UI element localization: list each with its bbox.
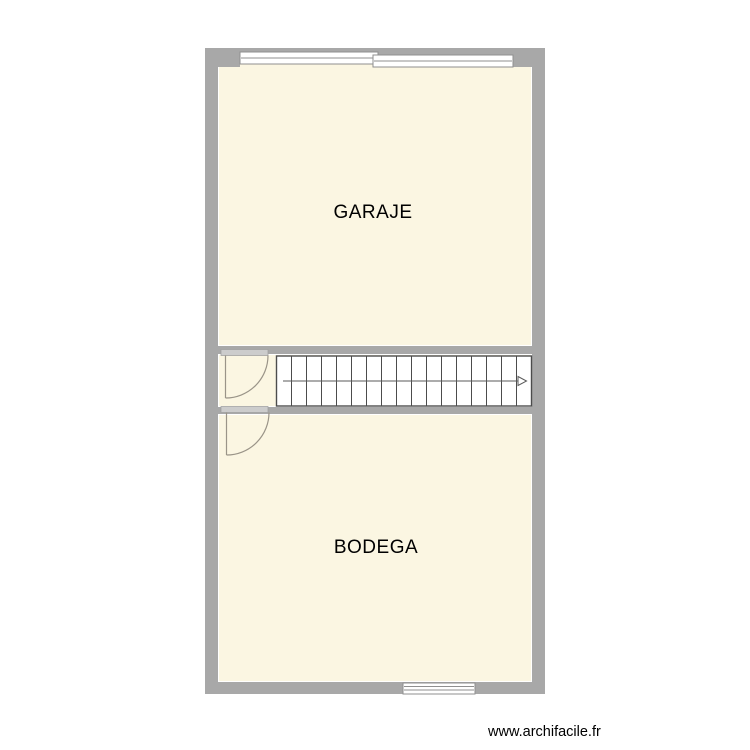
wall-corner-top-right <box>513 48 545 67</box>
wall-bottom[interactable] <box>205 682 545 694</box>
door-opening-bar <box>221 407 268 413</box>
watermark-text: www.archifacile.fr <box>487 724 601 740</box>
floor-plan: GARAJE BODEGA www.archifacile.fr <box>0 0 750 750</box>
window-frame <box>403 683 475 694</box>
room-label-bodega: BODEGA <box>334 537 418 558</box>
window-top-right[interactable] <box>373 55 513 67</box>
door-opening-bar <box>221 350 268 356</box>
wall-left[interactable] <box>205 48 218 694</box>
window-bottom[interactable] <box>403 683 475 694</box>
wall-right[interactable] <box>532 48 545 694</box>
wall-corner-top-left <box>205 48 240 67</box>
window-top-left[interactable] <box>240 52 378 64</box>
plan-canvas: GARAJE BODEGA www.archifacile.fr <box>0 0 750 750</box>
staircase[interactable] <box>277 356 532 406</box>
room-label-garaje: GARAJE <box>333 202 412 223</box>
